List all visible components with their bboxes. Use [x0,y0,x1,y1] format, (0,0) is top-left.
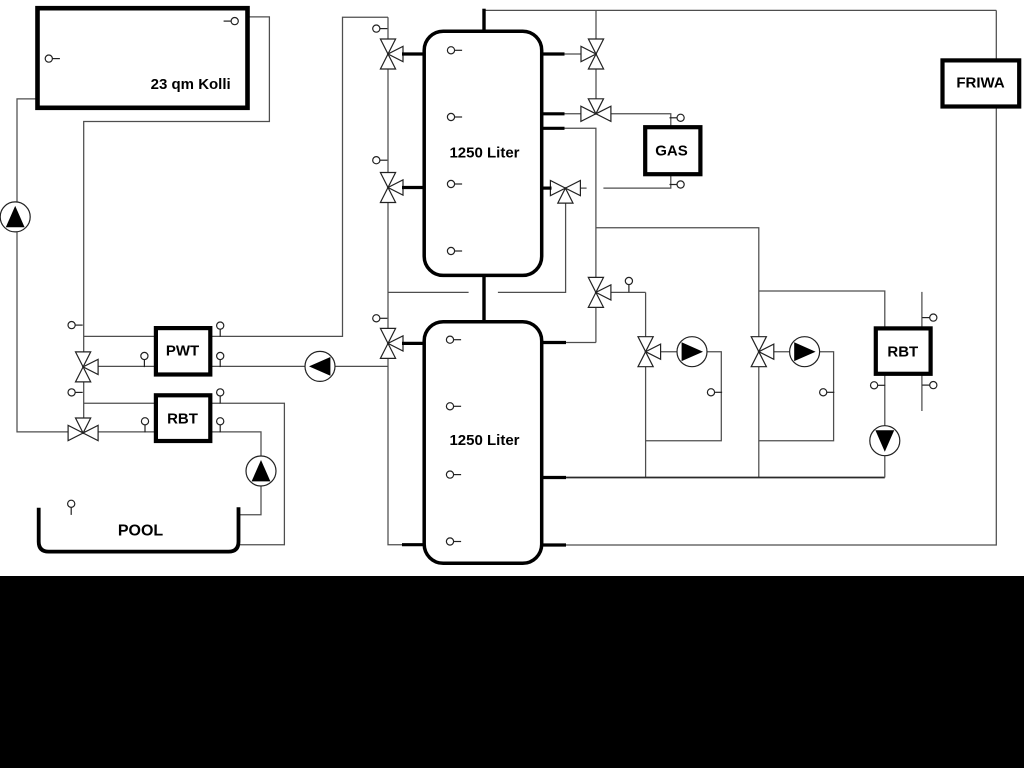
svg-text:RBT: RBT [887,344,918,361]
svg-text:23 qm Kolli: 23 qm Kolli [151,76,231,93]
svg-text:POOL: POOL [118,523,164,540]
svg-text:GAS: GAS [655,143,688,160]
svg-text:1250 Liter: 1250 Liter [449,432,519,449]
svg-text:PWT: PWT [166,343,199,360]
svg-text:FRIWA: FRIWA [956,75,1004,92]
svg-text:1250 Liter: 1250 Liter [449,144,519,161]
svg-text:RBT: RBT [167,411,198,428]
